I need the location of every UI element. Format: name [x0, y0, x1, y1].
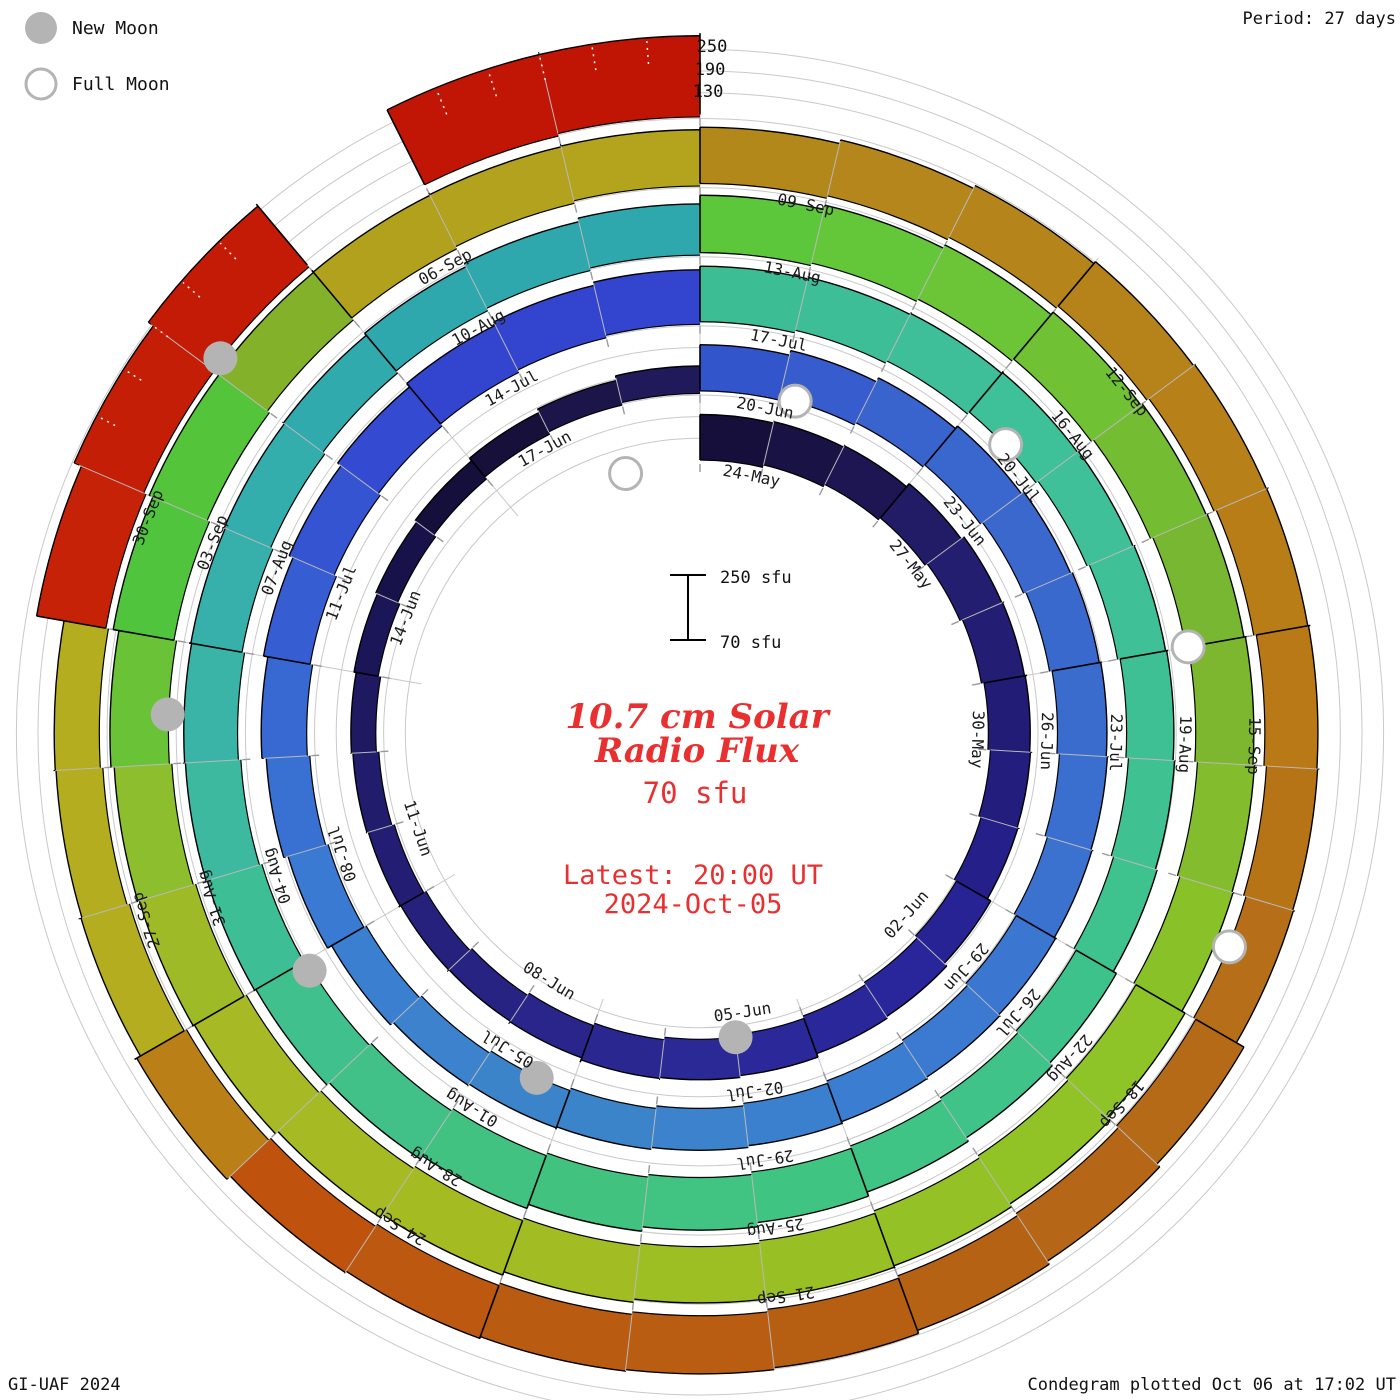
- day-flux-bar: [1052, 662, 1107, 756]
- day-tick: [649, 1165, 650, 1173]
- day-tick: [871, 1202, 874, 1210]
- day-tick: [823, 1072, 826, 1080]
- day-tick: [917, 468, 922, 474]
- day-tick: [1015, 594, 1022, 597]
- day-tick: [524, 1209, 527, 1217]
- day-flux-bar: [700, 415, 773, 468]
- day-tick: [908, 930, 914, 935]
- day-tick: [559, 137, 561, 145]
- day-tick: [623, 406, 625, 414]
- height-step-line: [968, 1140, 969, 1141]
- radial-tick-190: 190: [695, 60, 726, 80]
- day-tick: [970, 814, 978, 816]
- baseline-label: 70 sfu: [643, 776, 748, 810]
- day-tick: [633, 1302, 634, 1310]
- period-label: Period: 27 days: [1242, 9, 1396, 29]
- latest-date-label: 2024-Oct-05: [604, 889, 783, 920]
- day-tick: [422, 989, 428, 994]
- day-flux-bar: [615, 366, 700, 403]
- radial-axis-labels: 250 190 130: [693, 37, 728, 102]
- legend-full-moon-label: Full Moon: [72, 74, 170, 95]
- height-step-line: [1195, 364, 1196, 365]
- day-tick: [972, 684, 980, 685]
- day-flux-bar: [1120, 651, 1174, 761]
- height-step-line: [1134, 545, 1135, 546]
- day-tick: [946, 875, 953, 879]
- credit-label: GI-UAF 2024: [8, 1375, 121, 1395]
- center-text: 10.7 cm Solar Radio Flux 70 sfu Latest: …: [563, 697, 831, 920]
- day-tick: [641, 1234, 642, 1242]
- full-moon-marker: [1213, 931, 1245, 963]
- day-tick: [575, 205, 577, 213]
- day-tick: [530, 985, 534, 992]
- height-step-line: [1207, 514, 1208, 515]
- new-moon-marker: [203, 341, 237, 375]
- day-tick: [847, 1137, 850, 1145]
- day-tick: [1185, 1013, 1192, 1017]
- day-tick: [1006, 910, 1013, 914]
- day-tick: [443, 427, 448, 433]
- legend-new-moon-label: New Moon: [72, 18, 159, 39]
- height-step-line: [345, 1272, 346, 1273]
- latest-time-label: Latest: 20:00 UT: [563, 860, 823, 891]
- day-tick: [819, 488, 823, 495]
- day-tick: [665, 1028, 666, 1036]
- day-flux-bar: [700, 345, 790, 400]
- height-step-line: [927, 1079, 928, 1080]
- day-flux-bar: [528, 1153, 648, 1231]
- height-step-line: [447, 970, 449, 971]
- full-moon-marker: [610, 458, 642, 490]
- day-tick: [1036, 834, 1044, 836]
- height-step-line: [468, 1085, 469, 1086]
- height-step-line: [946, 965, 947, 966]
- day-flux-bar: [984, 676, 1030, 753]
- day-tick: [1066, 944, 1073, 948]
- radial-tick-130: 130: [693, 82, 724, 102]
- day-tick: [488, 480, 493, 486]
- new-moon-icon: [25, 12, 57, 44]
- height-step-line: [284, 857, 286, 858]
- day-tick: [382, 496, 388, 501]
- new-moon-marker: [719, 1020, 753, 1054]
- day-flux-bar: [634, 1243, 766, 1303]
- day-tick: [1235, 893, 1243, 895]
- day-tick: [271, 413, 277, 418]
- height-step-line: [1003, 602, 1005, 603]
- day-tick: [437, 537, 443, 542]
- full-moon-icon: [26, 69, 56, 99]
- day-flux-bar: [593, 270, 700, 336]
- day-flux-bar: [415, 461, 487, 535]
- height-step-line: [911, 312, 912, 313]
- day-tick: [591, 272, 593, 280]
- day-tick: [367, 921, 374, 925]
- flux-scale-bar: 250 sfu 70 sfu: [670, 568, 792, 653]
- day-tick: [354, 321, 359, 327]
- height-step-line: [615, 376, 616, 378]
- scale-bar-top-label: 250 sfu: [720, 568, 792, 588]
- height-step-line: [539, 52, 540, 54]
- day-flux-bar: [261, 657, 312, 759]
- day-tick: [427, 887, 434, 891]
- date-label: 26-Jun: [1037, 712, 1057, 770]
- day-tick: [548, 1144, 551, 1152]
- day-tick: [595, 1014, 598, 1022]
- height-step-line: [391, 1024, 392, 1025]
- plotted-timestamp-label: Condegram plotted Oct 06 at 17:02 UT: [1028, 1375, 1396, 1395]
- height-step-line: [1293, 911, 1295, 912]
- day-flux-bar: [184, 643, 245, 763]
- day-tick: [473, 942, 479, 947]
- day-flux-bar: [1111, 758, 1174, 869]
- full-moon-marker: [1172, 631, 1204, 663]
- day-tick: [873, 521, 878, 527]
- day-tick: [248, 990, 255, 994]
- height-step-line: [1000, 1016, 1001, 1017]
- condegram-solar-flux-chart: 24-May27-May30-May02-Jun05-Jun08-Jun11-J…: [0, 0, 1400, 1400]
- day-tick: [1040, 672, 1048, 673]
- day-tick: [1142, 539, 1149, 542]
- chart-title-line2: Radio Flux: [594, 731, 800, 771]
- date-label: 05-Jun: [713, 998, 773, 1026]
- day-tick: [1078, 567, 1085, 570]
- height-step-line: [1267, 488, 1269, 489]
- day-tick: [1006, 362, 1011, 368]
- date-label: 15-Sep: [1244, 717, 1264, 775]
- day-flux-bar: [537, 381, 622, 432]
- date-label: 11-Jun: [400, 798, 437, 859]
- date-label: 23-Jul: [1106, 714, 1126, 772]
- new-moon-marker: [151, 697, 185, 731]
- day-flux-bar: [642, 1175, 757, 1231]
- new-moon-marker: [293, 954, 327, 988]
- radial-tick-250: 250: [697, 37, 728, 57]
- day-flux-bar: [1244, 766, 1318, 910]
- day-flux-bar: [652, 1106, 749, 1150]
- height-step-line: [282, 422, 283, 423]
- legend: New Moon Full Moon: [25, 12, 170, 99]
- day-tick: [1168, 873, 1176, 875]
- height-step-line: [1049, 1263, 1050, 1264]
- day-flux-bar: [504, 1218, 640, 1302]
- day-tick: [607, 339, 609, 347]
- day-tick: [657, 1096, 658, 1104]
- height-step-line: [1018, 828, 1020, 829]
- day-tick: [951, 621, 958, 624]
- day-flux-bar: [449, 948, 527, 1021]
- day-tick: [399, 374, 404, 380]
- day-flux-bar: [626, 1312, 775, 1374]
- day-tick: [1102, 853, 1110, 855]
- day-flux-bar: [1256, 626, 1318, 769]
- scale-bar-bottom-label: 70 sfu: [720, 633, 781, 653]
- day-tick: [1108, 660, 1116, 661]
- day-tick: [372, 1037, 378, 1042]
- day-flux-bar: [353, 752, 392, 833]
- day-tick: [800, 1007, 803, 1015]
- day-tick: [962, 415, 967, 421]
- day-flux-bar: [557, 1088, 656, 1149]
- date-label: 30-May: [968, 710, 988, 769]
- date-label: 19-Aug: [1175, 715, 1195, 773]
- day-tick: [326, 455, 332, 460]
- day-tick: [571, 1079, 574, 1087]
- day-flux-bar: [1074, 857, 1157, 972]
- day-tick: [1126, 979, 1133, 983]
